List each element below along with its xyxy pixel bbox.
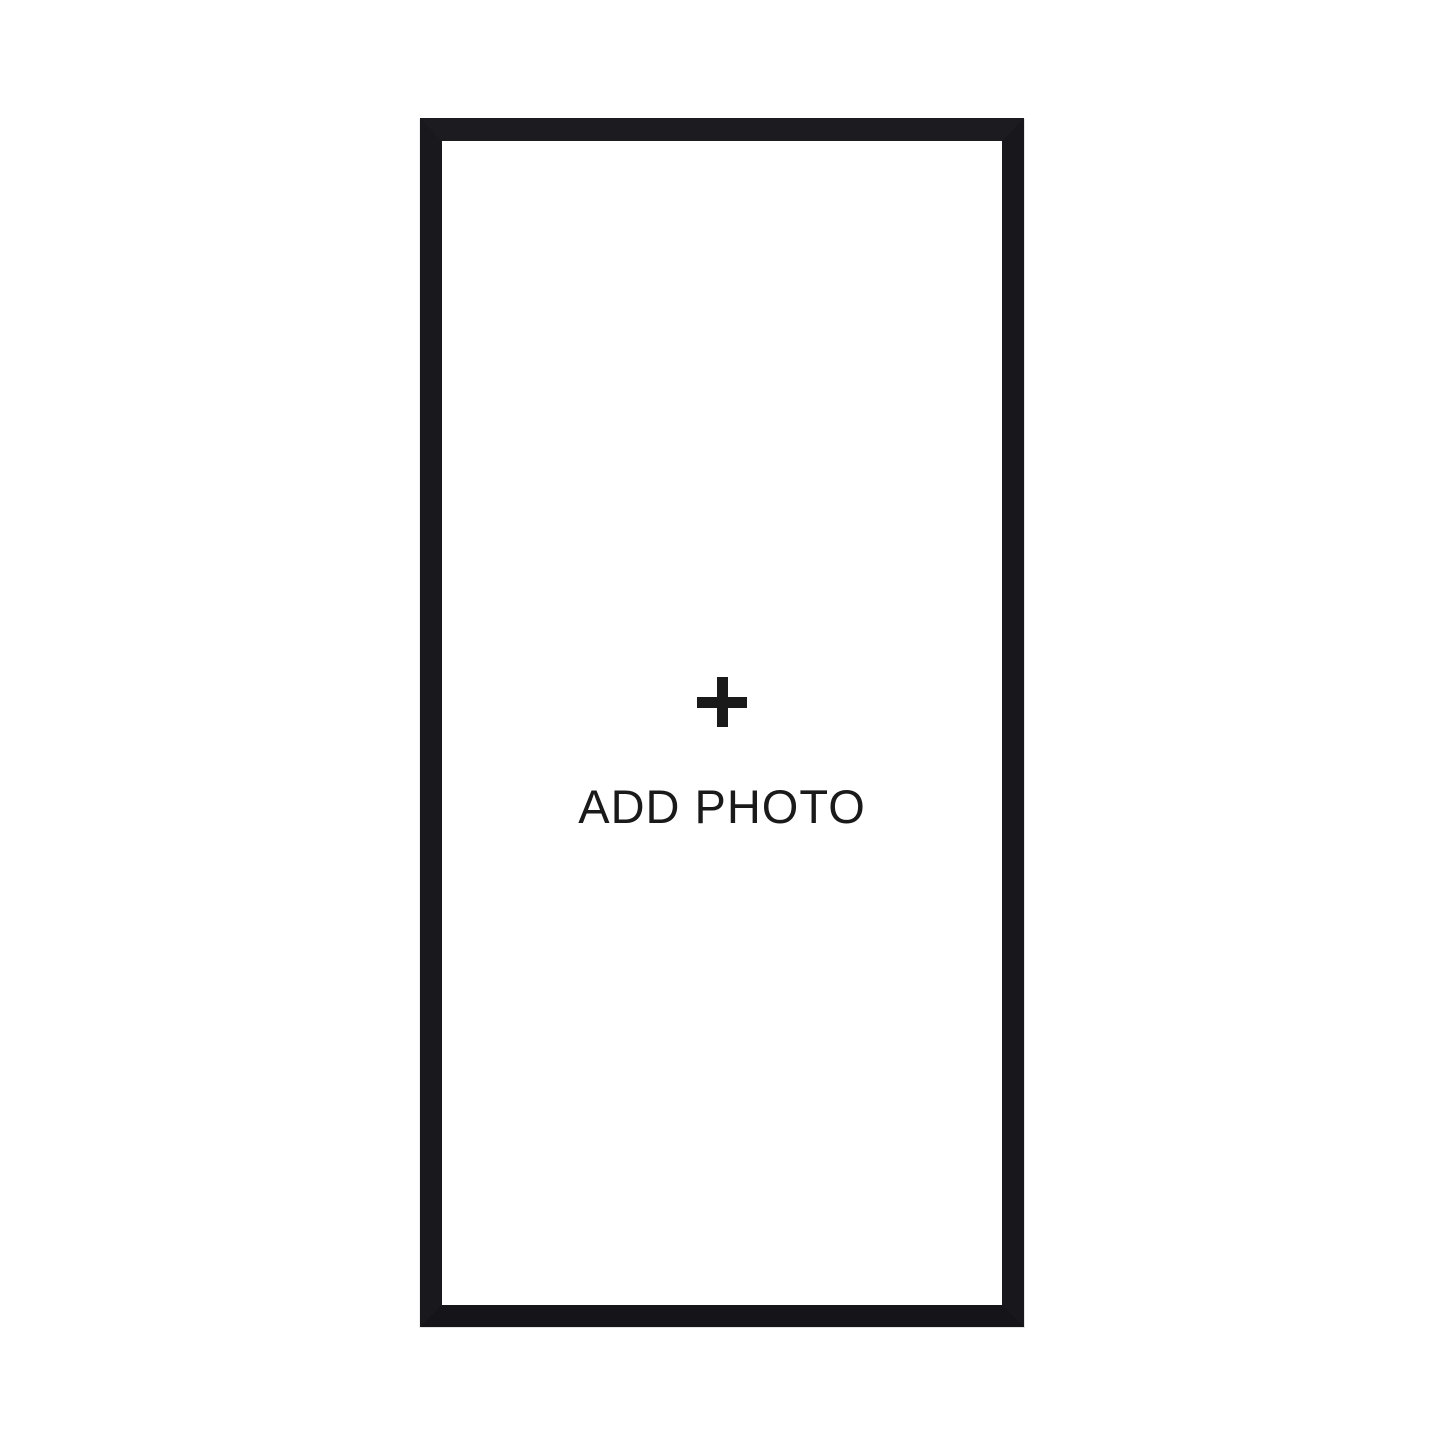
- plus-icon: [697, 677, 747, 727]
- add-photo-area[interactable]: ADD PHOTO: [442, 141, 1002, 1305]
- add-photo-label: ADD PHOTO: [578, 781, 866, 833]
- photo-frame: ADD PHOTO: [420, 118, 1024, 1327]
- page-background: ADD PHOTO: [0, 0, 1445, 1445]
- add-photo-cta: ADD PHOTO: [442, 677, 1002, 833]
